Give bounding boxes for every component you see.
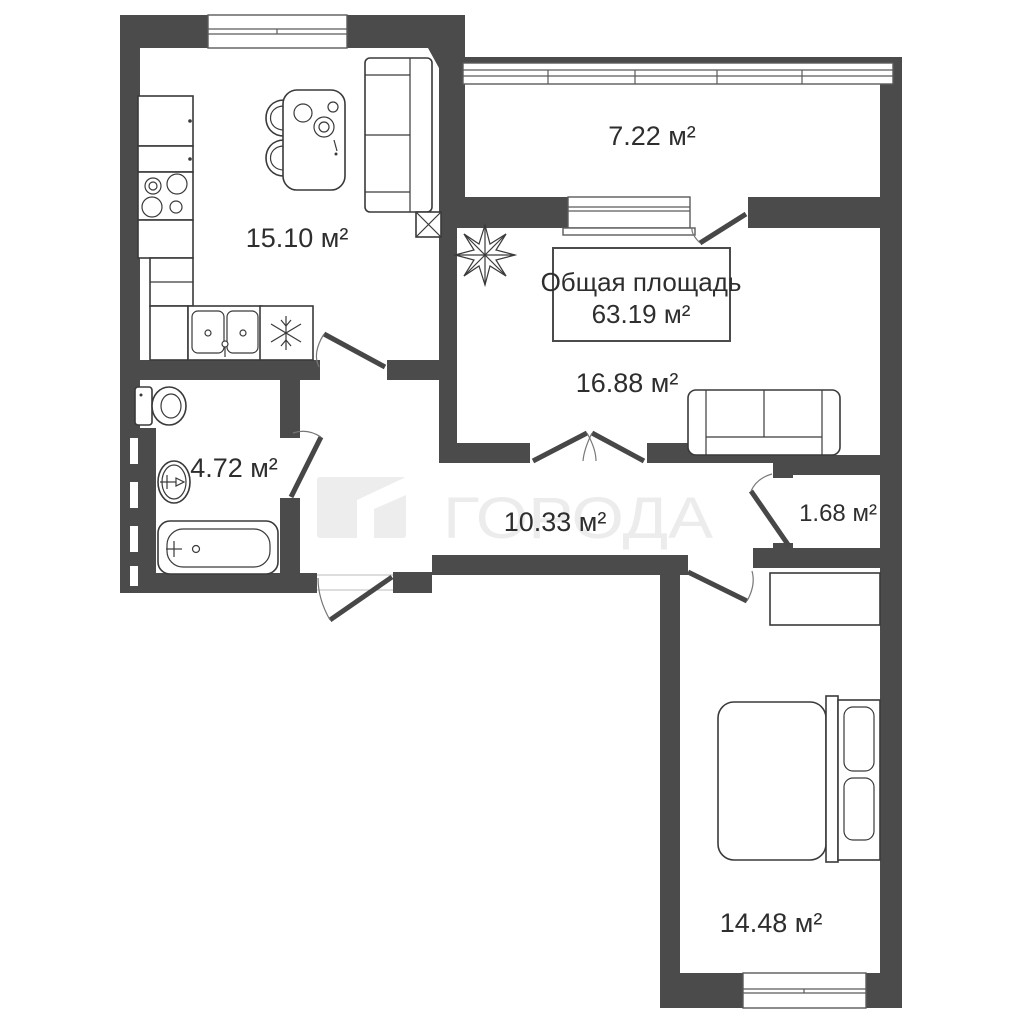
stove-burner <box>142 197 162 217</box>
total-area-value: 63.19 м² <box>592 299 691 329</box>
stove-burner <box>167 174 187 194</box>
wall-segment <box>120 360 320 380</box>
wall-dash <box>130 438 138 464</box>
bathroom-door <box>291 431 321 497</box>
sink-drain <box>240 330 246 336</box>
wall-segment <box>120 573 317 593</box>
wall-segment <box>347 15 465 48</box>
wall-dash <box>130 566 138 586</box>
bathtub-inner <box>167 529 270 567</box>
wall-segment <box>443 197 568 228</box>
kitchen-sink-double <box>188 306 262 360</box>
bathtub <box>158 521 278 574</box>
cup <box>328 102 338 112</box>
kitchen-counter <box>150 306 188 360</box>
wall-segment <box>280 380 300 438</box>
kitchen-area-label: 15.10 м² <box>246 223 349 253</box>
sink-drain <box>205 330 211 336</box>
door-swing-arc <box>747 571 753 601</box>
bathroom-sink <box>158 461 190 503</box>
cup <box>319 122 329 132</box>
chair <box>266 100 284 136</box>
stove-burner <box>170 201 182 213</box>
door-leaf <box>324 334 385 367</box>
closet-area-label: 1.68 м² <box>799 500 877 527</box>
window-frame <box>463 63 893 84</box>
floor-plan: ГОРОДА <box>0 0 1024 1024</box>
wall-segment <box>120 15 140 360</box>
total-area-box: Общая площадь 63.19 м² <box>541 248 742 341</box>
wall-segment <box>680 973 743 1008</box>
balcony-area-label: 7.22 м² <box>608 121 696 151</box>
plant-veins <box>455 225 515 285</box>
stove-burner <box>149 182 157 190</box>
living-sofa <box>688 390 840 455</box>
kitchen-counter <box>138 220 193 258</box>
balcony-glazing <box>463 63 893 84</box>
wardrobe <box>770 573 880 625</box>
plate <box>294 104 312 122</box>
bed-pillow <box>844 778 874 840</box>
toilet <box>135 387 186 425</box>
wall-segment <box>387 360 457 380</box>
bed-mattress <box>718 702 826 860</box>
door-swing-arc <box>318 578 330 620</box>
door-leaf <box>592 433 644 461</box>
bed-headboard <box>826 696 838 862</box>
ventilation-shaft <box>416 212 441 237</box>
bedroom-window <box>743 973 866 1008</box>
plant-icon <box>455 225 515 285</box>
sink-faucet <box>222 341 228 347</box>
door-leaf <box>688 572 747 601</box>
bedroom-area-label: 14.48 м² <box>720 908 823 938</box>
kitchen-counter <box>138 146 193 172</box>
living-double-door <box>533 433 644 461</box>
bed <box>718 696 880 862</box>
door-leaf <box>533 433 587 461</box>
wall-segment <box>753 548 880 568</box>
cabinet-handle <box>188 157 192 161</box>
wall-segment <box>660 555 680 1008</box>
wall-segment <box>393 572 432 593</box>
toilet-button <box>140 394 143 397</box>
door-leaf <box>291 437 321 497</box>
wall-dash <box>130 482 138 508</box>
wall-segment <box>866 973 882 1008</box>
wall-segment <box>280 498 300 575</box>
wall-dash <box>130 526 138 552</box>
toilet-bowl-inner <box>161 394 181 418</box>
bathroom-area-label: 4.72 м² <box>190 453 278 483</box>
door-leaf <box>330 577 392 620</box>
kitchen-sofa <box>365 58 432 212</box>
wall-segment <box>443 443 530 463</box>
kitchen-furniture <box>138 58 441 360</box>
bedroom-door <box>688 571 753 601</box>
wall-segment <box>439 228 457 463</box>
wall-segment <box>773 463 793 478</box>
wall-segment <box>432 555 688 575</box>
door-leaf <box>751 491 789 546</box>
total-area-title: Общая площадь <box>541 267 742 297</box>
wall-segment <box>748 197 880 228</box>
window-sill <box>563 228 695 235</box>
wall-segment <box>463 57 893 63</box>
living-balcony-window <box>563 197 695 235</box>
cabinet-handle <box>188 119 192 123</box>
bedroom-furniture <box>718 573 880 862</box>
kitchen-counter <box>138 96 193 146</box>
utensil <box>335 153 338 156</box>
balcony-door <box>692 214 746 243</box>
closet-door <box>751 474 789 546</box>
entrance-door <box>317 575 393 620</box>
bathtub-drain <box>193 546 200 553</box>
toilet-tank <box>135 387 152 425</box>
hallway-area-label: 10.33 м² <box>504 507 607 537</box>
door-leaf <box>700 214 746 243</box>
kitchen-door <box>316 334 385 367</box>
wall-segment <box>880 57 902 1008</box>
chair <box>266 140 284 176</box>
door-swing-arc <box>316 334 324 367</box>
door-swing-arc <box>751 474 772 491</box>
door-swing-arc <box>583 433 592 461</box>
dining-table-set <box>266 90 345 190</box>
living-area-label: 16.88 м² <box>576 368 679 398</box>
bed-pillow <box>844 707 874 771</box>
window-frame <box>568 197 690 228</box>
kitchen-window <box>208 15 347 48</box>
fridge <box>260 306 313 360</box>
